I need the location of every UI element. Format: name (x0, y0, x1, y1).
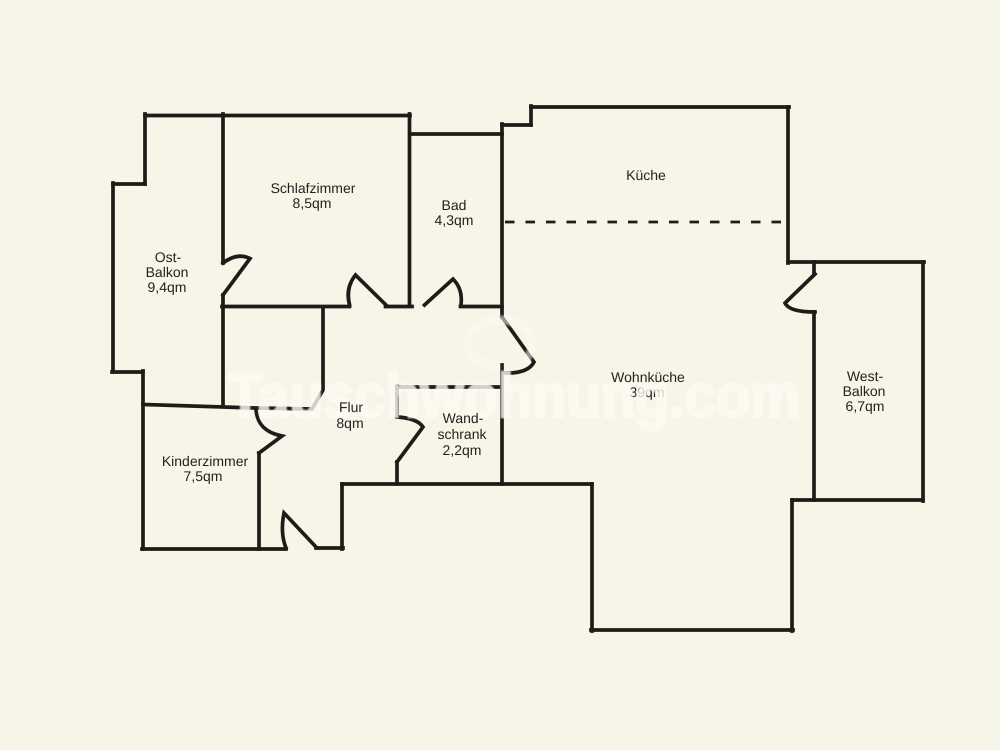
svg-text:Wand-: Wand- (443, 410, 484, 426)
svg-text:Balkon: Balkon (146, 264, 189, 280)
svg-text:Kinderzimmer: Kinderzimmer (162, 453, 249, 469)
svg-text:schrank: schrank (437, 426, 487, 442)
svg-text:Flur: Flur (339, 399, 363, 415)
svg-text:4,3qm: 4,3qm (435, 212, 474, 228)
svg-text:8qm: 8qm (336, 415, 363, 431)
svg-text:Schlafzimmer: Schlafzimmer (271, 180, 356, 196)
svg-text:Balkon: Balkon (843, 383, 886, 399)
svg-text:Tauschwohnung.com: Tauschwohnung.com (228, 362, 800, 431)
svg-text:9,4qm: 9,4qm (148, 279, 187, 295)
svg-text:2,2qm: 2,2qm (443, 442, 482, 458)
svg-text:6,7qm: 6,7qm (846, 398, 885, 414)
svg-text:7,5qm: 7,5qm (184, 468, 223, 484)
svg-text:Wohnküche: Wohnküche (611, 369, 685, 385)
svg-text:West-: West- (847, 368, 884, 384)
svg-text:Küche: Küche (626, 167, 666, 183)
svg-text:Bad: Bad (442, 197, 467, 213)
svg-text:Ost-: Ost- (155, 249, 182, 265)
svg-text:8,5qm: 8,5qm (293, 195, 332, 211)
